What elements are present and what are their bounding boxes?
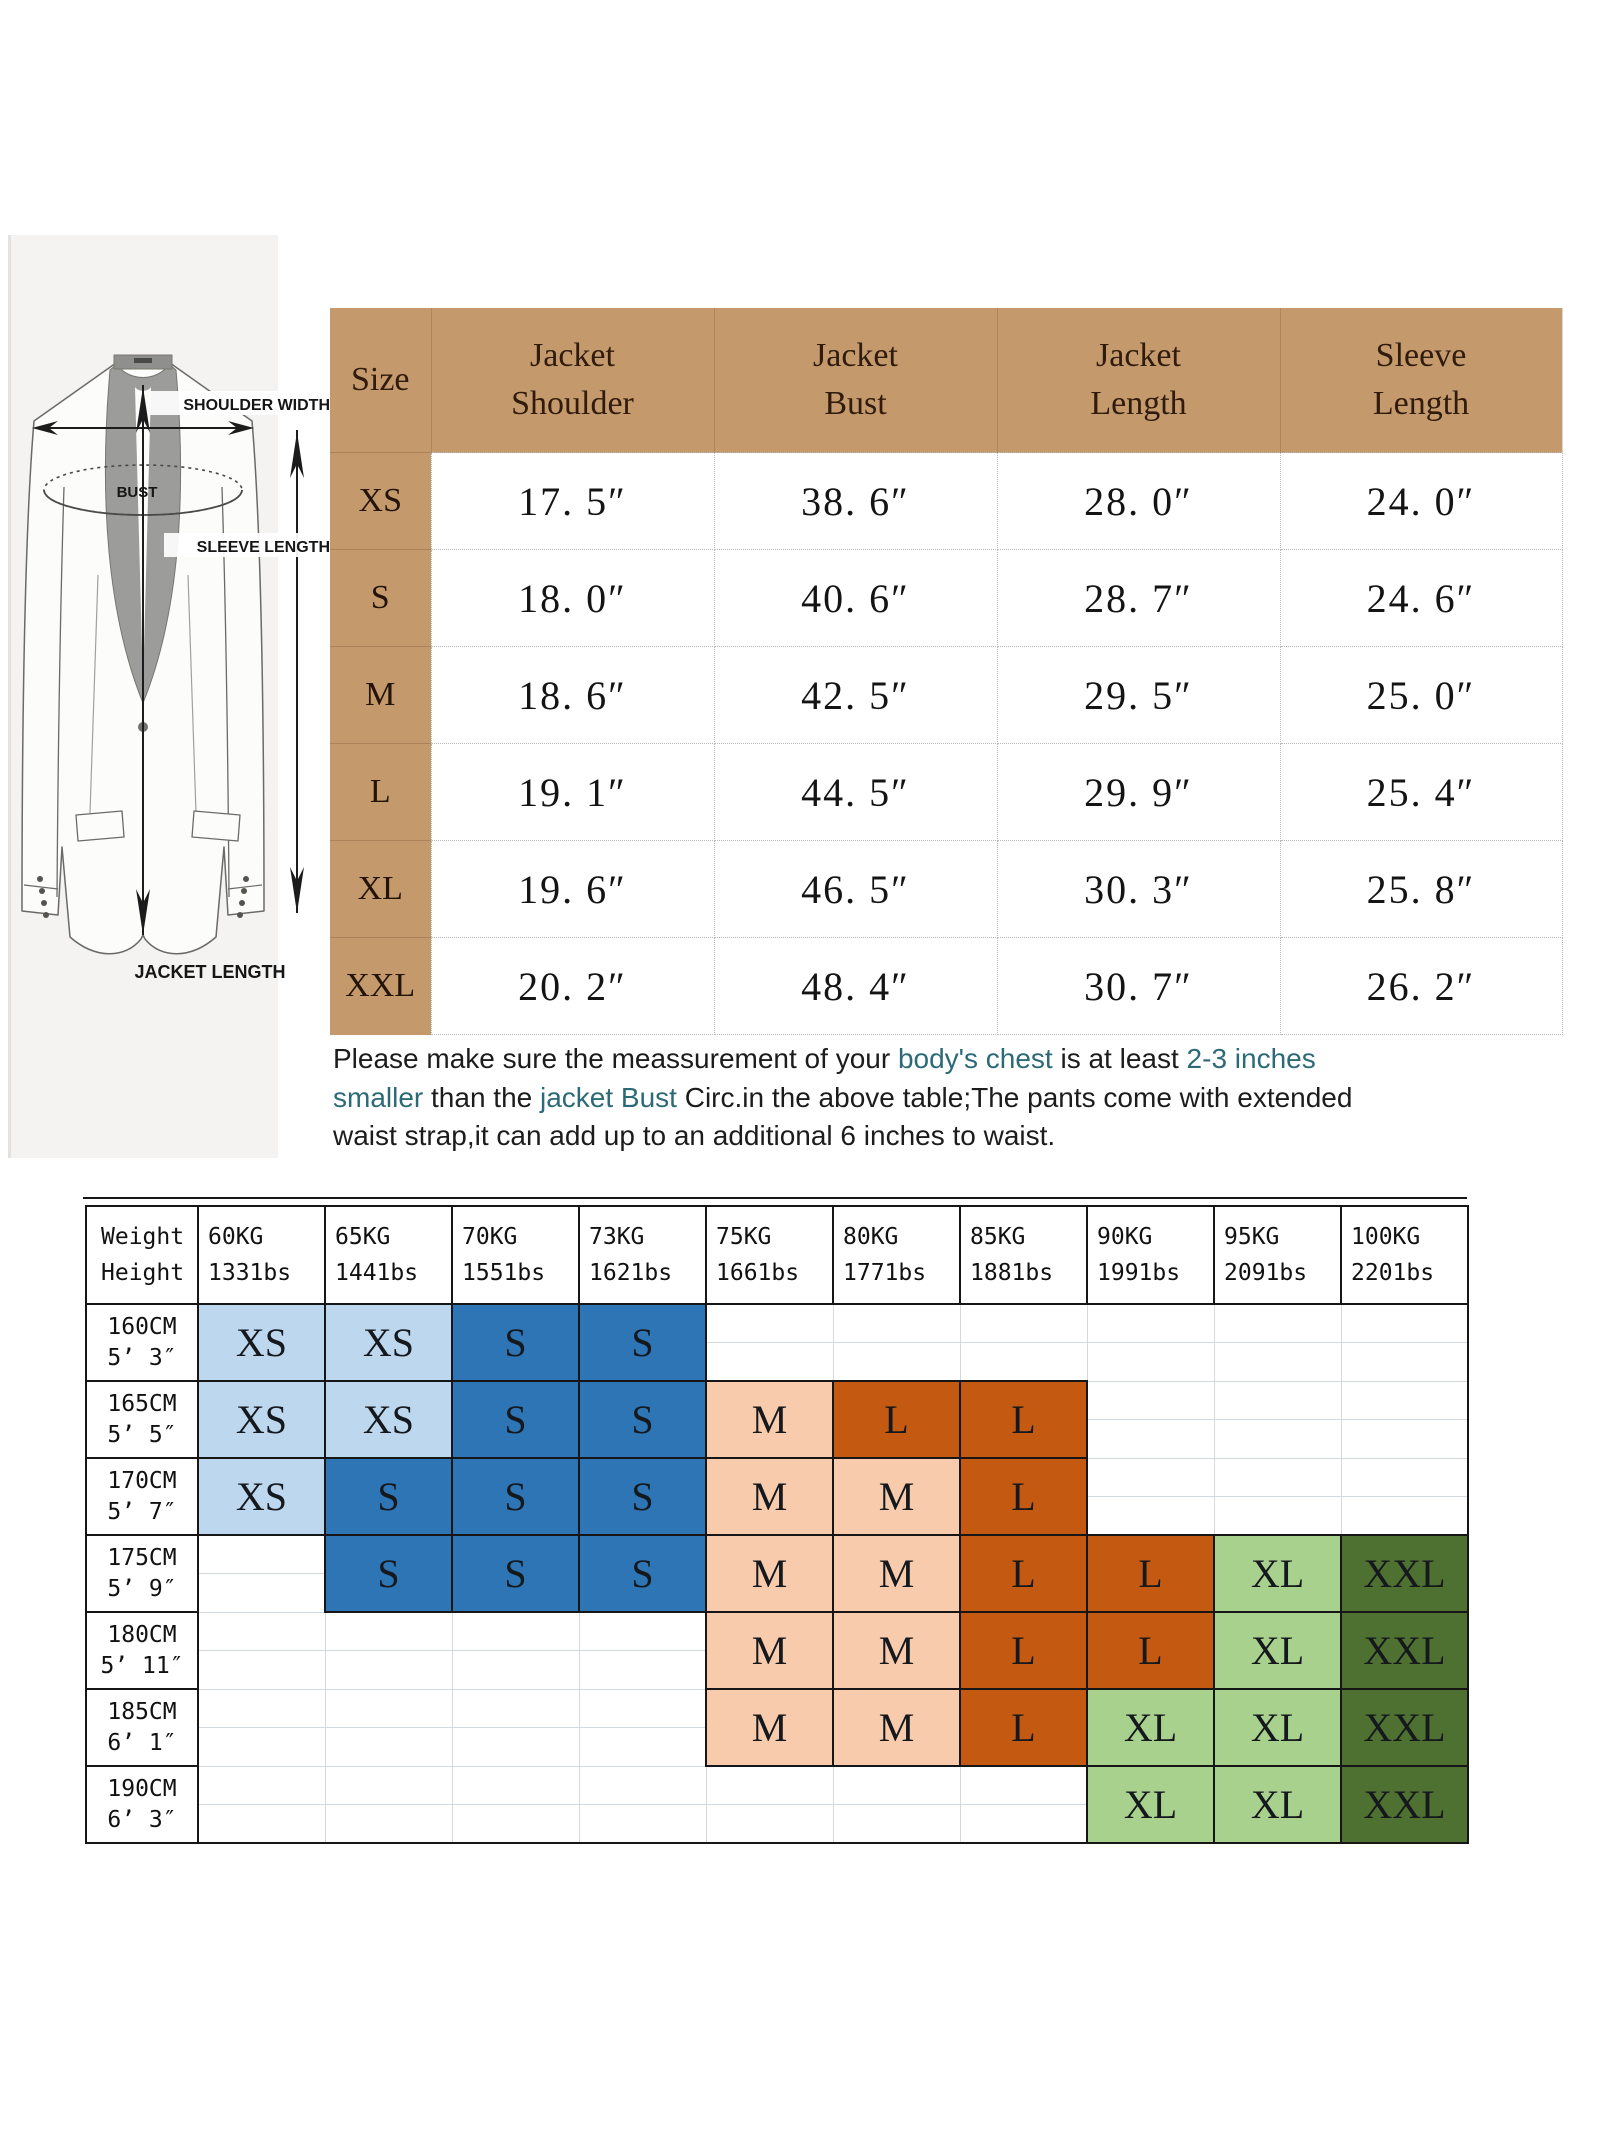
note-line: smaller than the jacket Bust Circ.in the… (333, 1079, 1548, 1118)
bust-label: BUST (117, 484, 158, 501)
measurement-value: 29. 9″ (997, 744, 1280, 841)
fit-empty-cell (452, 1689, 579, 1766)
weight-lbs: 1991bs (1097, 1255, 1213, 1291)
fit-empty-cell (198, 1689, 325, 1766)
fit-size-cell: XL (1214, 1612, 1341, 1689)
fit-empty-cell (198, 1612, 325, 1689)
fit-empty-cell (960, 1766, 1087, 1843)
fit-table-row: 160CM5’ 3″XSXSSS (86, 1304, 1468, 1381)
fit-empty-cell (325, 1689, 452, 1766)
fit-table-header-row: WeightHeight60KG1331bs65KG1441bs70KG1551… (86, 1206, 1468, 1304)
weight-header: 70KG1551bs (452, 1206, 579, 1304)
fit-size-cell: S (579, 1535, 706, 1612)
height-weight-fit-table: WeightHeight60KG1331bs65KG1441bs70KG1551… (85, 1205, 1469, 1844)
weight-lbs: 1621bs (589, 1255, 705, 1291)
fit-size-cell: XS (325, 1381, 452, 1458)
weight-lbs: 1771bs (843, 1255, 959, 1291)
fit-size-cell: XL (1214, 1689, 1341, 1766)
fit-empty-cell (325, 1612, 452, 1689)
fit-size-cell: XS (198, 1304, 325, 1381)
measurement-value: 25. 0″ (1280, 647, 1562, 744)
measurement-value: 30. 7″ (997, 938, 1280, 1035)
weight-lbs: 2091bs (1224, 1255, 1340, 1291)
measurement-value: 48. 4″ (714, 938, 997, 1035)
fit-size-cell: XXL (1341, 1612, 1468, 1689)
height-cm: 160CM (87, 1312, 197, 1343)
fit-table-row: 165CM5’ 5″XSXSSSMLL (86, 1381, 1468, 1458)
fit-empty-cell (833, 1766, 960, 1843)
fit-table-row: 190CM6’ 3″XLXLXXL (86, 1766, 1468, 1843)
note-highlight: body's chest (898, 1043, 1053, 1074)
fit-size-cell: M (706, 1458, 833, 1535)
measurement-value: 19. 6″ (431, 841, 714, 938)
height-ft: 6’ 1″ (87, 1728, 197, 1759)
fit-size-cell: M (833, 1458, 960, 1535)
size-table-row: S18. 0″40. 6″28. 7″24. 6″ (330, 550, 1562, 647)
fit-empty-cell (198, 1766, 325, 1843)
weight-lbs: 1331bs (208, 1255, 324, 1291)
measurement-note: Please make sure the meassurement of you… (333, 1040, 1548, 1156)
fit-size-cell: XXL (1341, 1766, 1468, 1843)
measurement-value: 44. 5″ (714, 744, 997, 841)
note-text: Circ.in the above table;The pants come w… (677, 1082, 1353, 1113)
fit-empty-cell (706, 1304, 833, 1381)
fit-table-row: 185CM6’ 1″MMLXLXLXXL (86, 1689, 1468, 1766)
weight-header: 73KG1621bs (579, 1206, 706, 1304)
height-cm: 175CM (87, 1543, 197, 1574)
height-header: 175CM5’ 9″ (86, 1535, 198, 1612)
shoulder-width-label: SHOULDER WIDTH (183, 397, 330, 414)
fit-empty-cell (1214, 1458, 1341, 1535)
size-label: XS (330, 453, 431, 550)
size-table-header-row: SizeJacket ShoulderJacket BustJacket Len… (330, 308, 1562, 453)
measurement-column-header: Jacket Bust (714, 308, 997, 453)
fit-empty-cell (1214, 1304, 1341, 1381)
fit-size-cell: S (579, 1458, 706, 1535)
fit-size-cell: M (833, 1535, 960, 1612)
measurement-value: 25. 4″ (1280, 744, 1562, 841)
measurement-value: 40. 6″ (714, 550, 997, 647)
sleeve-length-label: SLEEVE LENGTH (197, 539, 330, 556)
fit-empty-cell (833, 1304, 960, 1381)
fit-size-cell: XS (198, 1381, 325, 1458)
height-ft: 5’ 7″ (87, 1497, 197, 1528)
height-header: 165CM5’ 5″ (86, 1381, 198, 1458)
weight-kg: 100KG (1351, 1219, 1467, 1255)
measurement-value: 28. 7″ (997, 550, 1280, 647)
height-header: 185CM6’ 1″ (86, 1689, 198, 1766)
measurement-value: 25. 8″ (1280, 841, 1562, 938)
measurement-value: 26. 2″ (1280, 938, 1562, 1035)
size-table-row: L19. 1″44. 5″29. 9″25. 4″ (330, 744, 1562, 841)
note-text: than the (423, 1082, 540, 1113)
fit-empty-cell (1087, 1304, 1214, 1381)
weight-kg: 85KG (970, 1219, 1086, 1255)
height-ft: 5’ 3″ (87, 1343, 197, 1374)
fit-empty-cell (960, 1304, 1087, 1381)
weight-header: 60KG1331bs (198, 1206, 325, 1304)
fit-size-cell: XL (1087, 1689, 1214, 1766)
fit-size-cell: S (452, 1458, 579, 1535)
fit-empty-cell (198, 1535, 325, 1612)
fit-table-row: 180CM5’ 11″MMLLXLXXL (86, 1612, 1468, 1689)
weight-height-corner: WeightHeight (86, 1206, 198, 1304)
weight-header: 100KG2201bs (1341, 1206, 1468, 1304)
weight-header: 85KG1881bs (960, 1206, 1087, 1304)
size-label: XXL (330, 938, 431, 1035)
fit-empty-cell (452, 1612, 579, 1689)
fit-size-cell: S (452, 1304, 579, 1381)
height-ft: 5’ 11″ (87, 1651, 197, 1682)
measurement-value: 28. 0″ (997, 453, 1280, 550)
weight-lbs: 1441bs (335, 1255, 451, 1291)
fit-empty-cell (1214, 1381, 1341, 1458)
corner-weight-label: Weight (101, 1219, 197, 1255)
weight-kg: 60KG (208, 1219, 324, 1255)
height-ft: 5’ 5″ (87, 1420, 197, 1451)
fit-size-cell: M (706, 1381, 833, 1458)
fit-size-cell: XXL (1341, 1689, 1468, 1766)
fit-table-row: 170CM5’ 7″XSSSSMML (86, 1458, 1468, 1535)
jacket-length-label: JACKET LENGTH (134, 962, 285, 982)
note-text: is at least (1053, 1043, 1187, 1074)
fit-size-cell: XL (1214, 1766, 1341, 1843)
fit-empty-cell (579, 1689, 706, 1766)
height-header: 170CM5’ 7″ (86, 1458, 198, 1535)
fit-empty-cell (452, 1766, 579, 1843)
measurement-value: 19. 1″ (431, 744, 714, 841)
fit-size-cell: M (706, 1689, 833, 1766)
fit-size-cell: M (833, 1689, 960, 1766)
fit-table-top-border (83, 1197, 1467, 1199)
fit-empty-cell (1087, 1458, 1214, 1535)
height-cm: 185CM (87, 1697, 197, 1728)
height-cm: 170CM (87, 1466, 197, 1497)
fit-size-cell: XL (1214, 1535, 1341, 1612)
weight-lbs: 2201bs (1351, 1255, 1467, 1291)
fit-empty-cell (579, 1612, 706, 1689)
fit-size-cell: L (833, 1381, 960, 1458)
measurement-column-header: Jacket Length (997, 308, 1280, 453)
weight-kg: 75KG (716, 1219, 832, 1255)
diagram-panel-edge (8, 235, 11, 1158)
fit-size-cell: S (452, 1535, 579, 1612)
size-table-row: XL19. 6″46. 5″30. 3″25. 8″ (330, 841, 1562, 938)
note-highlight: 2-3 inches (1187, 1043, 1316, 1074)
height-ft: 6’ 3″ (87, 1805, 197, 1836)
fit-size-cell: L (960, 1458, 1087, 1535)
fit-empty-cell (1341, 1304, 1468, 1381)
jacket-size-table: SizeJacket ShoulderJacket BustJacket Len… (330, 308, 1563, 1035)
weight-header: 75KG1661bs (706, 1206, 833, 1304)
measurement-value: 46. 5″ (714, 841, 997, 938)
measurement-column-header: Jacket Shoulder (431, 308, 714, 453)
fit-size-cell: XXL (1341, 1535, 1468, 1612)
measurement-value: 29. 5″ (997, 647, 1280, 744)
measurement-value: 20. 2″ (431, 938, 714, 1035)
fit-empty-cell (706, 1766, 833, 1843)
fit-size-cell: L (1087, 1535, 1214, 1612)
weight-header: 80KG1771bs (833, 1206, 960, 1304)
fit-size-cell: XS (325, 1304, 452, 1381)
fit-size-cell: XS (198, 1458, 325, 1535)
note-line: Please make sure the meassurement of you… (333, 1040, 1548, 1079)
height-cm: 190CM (87, 1774, 197, 1805)
height-ft: 5’ 9″ (87, 1574, 197, 1605)
measurement-value: 18. 6″ (431, 647, 714, 744)
fit-size-cell: M (706, 1535, 833, 1612)
weight-header: 65KG1441bs (325, 1206, 452, 1304)
weight-kg: 65KG (335, 1219, 451, 1255)
measurement-value: 17. 5″ (431, 453, 714, 550)
fit-size-cell: M (833, 1612, 960, 1689)
measurement-value: 42. 5″ (714, 647, 997, 744)
weight-lbs: 1661bs (716, 1255, 832, 1291)
note-highlight: jacket Bust (540, 1082, 677, 1113)
size-table-row: XS17. 5″38. 6″28. 0″24. 0″ (330, 453, 1562, 550)
fit-size-cell: L (1087, 1612, 1214, 1689)
fit-size-cell: S (325, 1535, 452, 1612)
size-label: M (330, 647, 431, 744)
measurement-value: 24. 0″ (1280, 453, 1562, 550)
fit-empty-cell (1341, 1458, 1468, 1535)
note-line: waist strap,it can add up to an addition… (333, 1117, 1548, 1156)
fit-empty-cell (1341, 1381, 1468, 1458)
fit-size-cell: S (579, 1304, 706, 1381)
weight-kg: 73KG (589, 1219, 705, 1255)
fit-empty-cell (579, 1766, 706, 1843)
weight-header: 90KG1991bs (1087, 1206, 1214, 1304)
fit-empty-cell (1087, 1381, 1214, 1458)
height-header: 160CM5’ 3″ (86, 1304, 198, 1381)
measurement-value: 18. 0″ (431, 550, 714, 647)
measurement-value: 24. 6″ (1280, 550, 1562, 647)
size-column-header: Size (330, 308, 431, 453)
height-header: 180CM5’ 11″ (86, 1612, 198, 1689)
note-text: Please make sure the meassurement of you… (333, 1043, 898, 1074)
weight-kg: 95KG (1224, 1219, 1340, 1255)
fit-size-cell: L (960, 1535, 1087, 1612)
size-label: XL (330, 841, 431, 938)
measurement-value: 38. 6″ (714, 453, 997, 550)
corner-height-label: Height (101, 1255, 197, 1291)
size-label: S (330, 550, 431, 647)
height-cm: 180CM (87, 1620, 197, 1651)
fit-size-cell: L (960, 1612, 1087, 1689)
height-header: 190CM6’ 3″ (86, 1766, 198, 1843)
fit-table-row: 175CM5’ 9″SSSMMLLXLXXL (86, 1535, 1468, 1612)
fit-size-cell: L (960, 1381, 1087, 1458)
measurement-value: 30. 3″ (997, 841, 1280, 938)
size-table-row: M18. 6″42. 5″29. 5″25. 0″ (330, 647, 1562, 744)
fit-size-cell: L (960, 1689, 1087, 1766)
fit-size-cell: S (325, 1458, 452, 1535)
fit-size-cell: XL (1087, 1766, 1214, 1843)
weight-kg: 80KG (843, 1219, 959, 1255)
fit-empty-cell (325, 1766, 452, 1843)
weight-kg: 90KG (1097, 1219, 1213, 1255)
measurement-column-header: Sleeve Length (1280, 308, 1562, 453)
weight-kg: 70KG (462, 1219, 578, 1255)
weight-lbs: 1551bs (462, 1255, 578, 1291)
note-text: waist strap,it can add up to an addition… (333, 1120, 1055, 1151)
fit-size-cell: S (579, 1381, 706, 1458)
weight-lbs: 1881bs (970, 1255, 1086, 1291)
note-highlight: smaller (333, 1082, 423, 1113)
size-table-row: XXL20. 2″48. 4″30. 7″26. 2″ (330, 938, 1562, 1035)
fit-size-cell: M (706, 1612, 833, 1689)
size-label: L (330, 744, 431, 841)
height-cm: 165CM (87, 1389, 197, 1420)
jacket-measurement-diagram: SHOULDER WIDTH BUST SLEEVE LENGTH JACKET… (0, 235, 332, 1160)
weight-header: 95KG2091bs (1214, 1206, 1341, 1304)
fit-size-cell: S (452, 1381, 579, 1458)
